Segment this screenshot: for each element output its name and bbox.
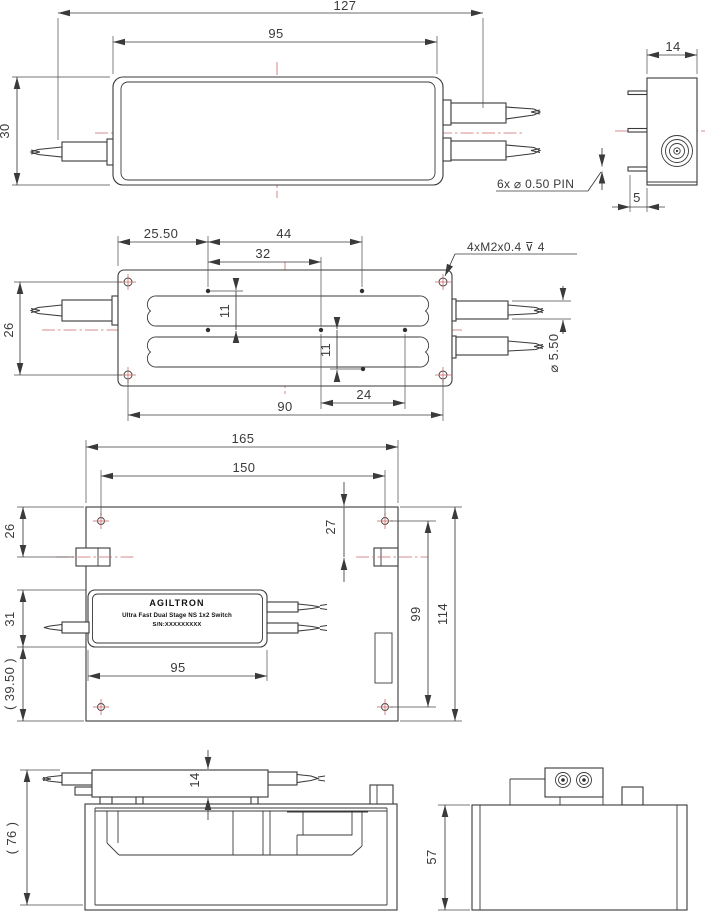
assembly-side-view: ( 76 ) 14: [4, 750, 397, 910]
fiber-ferrule: [456, 301, 508, 319]
fiber-ferrule: [456, 337, 508, 355]
dim-base-height: 114: [435, 603, 450, 625]
dim-device-offset: 31: [2, 611, 17, 626]
enclosure-side-outline: [85, 804, 397, 910]
dim-pin-pitch-upper: 11: [217, 304, 232, 318]
fiber-ferrule: [451, 103, 506, 123]
fiber-ferrule: [62, 142, 108, 161]
fiber-ferrule: [62, 622, 89, 633]
dim-pin-inset: 5: [633, 190, 641, 205]
dim-device-height: 14: [187, 772, 202, 787]
dim-tab-offset-left: 26: [2, 523, 17, 538]
assembly-end-view: 57: [424, 768, 687, 910]
note-thread-callout: 4xM2x0.4 ⊽ 4: [467, 240, 545, 254]
dim-body-height: 30: [0, 123, 12, 138]
bracket-outline: [118, 270, 452, 386]
dim-base-hole-span-v: 99: [408, 606, 423, 621]
connector-block: [545, 768, 603, 797]
dim-ferrule-diameter: ⌀ 5.50: [546, 333, 561, 372]
fiber-ferrule: [267, 602, 298, 612]
fiber-ferrule: [267, 623, 298, 633]
package-top-view: 127 95 30: [0, 0, 540, 198]
fiber-ferrule: [451, 141, 506, 160]
dim-pin-span-44: 44: [276, 226, 291, 241]
package-side-outline: [647, 78, 697, 185]
label-product: Ultra Fast Dual Stage NS 1x2 Switch: [122, 612, 232, 619]
base-plate-top-view: AGILTRON Ultra Fast Dual Stage NS 1x2 Sw…: [2, 431, 462, 721]
dim-left-offset: 25.50: [144, 226, 179, 241]
dim-body-length: 95: [268, 26, 283, 41]
engineering-drawing-sheet: 127 95 30 14: [0, 0, 727, 922]
label-serial: S/N:XXXXXXXXX: [153, 622, 202, 628]
dim-base-width: 165: [232, 431, 255, 446]
dim-pin-span-24: 24: [356, 387, 371, 402]
electrical-pin: [628, 91, 647, 95]
fiber-ferrule: [62, 773, 92, 785]
bracket-top-view: 25.50 44 32 26 11 11 24 90: [1, 226, 577, 421]
dim-pin-span-32: 32: [255, 246, 270, 261]
fiber-ferrule: [62, 300, 113, 321]
electrical-pin: [628, 129, 647, 133]
dim-hole-spacing-h: 90: [277, 399, 292, 414]
end-tab: [622, 787, 643, 805]
switch-device-side: [92, 770, 268, 797]
switch-body-outline: [113, 77, 443, 185]
enclosure-end-outline: [472, 805, 687, 910]
dim-overall-length: 127: [334, 0, 357, 13]
label-brand: AGILTRON: [149, 598, 204, 608]
dim-device-length: 95: [170, 660, 185, 675]
dim-hole-spacing-v: 26: [1, 322, 16, 337]
dim-base-hole-span: 150: [233, 460, 256, 475]
package-side-view: 14 5 6x ⌀ 0.50 PIN: [496, 39, 705, 212]
dim-package-width: 14: [665, 39, 680, 54]
dim-tab-offset-right: 27: [323, 519, 338, 534]
electrical-pin: [628, 167, 647, 171]
dim-assembly-ref-height: ( 76 ): [4, 822, 19, 855]
fiber-ferrule: [268, 772, 297, 785]
dim-ref-offset: ( 39.50 ): [2, 658, 17, 710]
note-pin-count: 6x ⌀ 0.50 PIN: [497, 177, 574, 191]
dim-enclosure-height: 57: [424, 849, 439, 864]
rear-block: [370, 785, 393, 804]
drawing-canvas: 127 95 30 14: [0, 0, 727, 922]
dim-pin-pitch-lower: 11: [318, 343, 333, 357]
